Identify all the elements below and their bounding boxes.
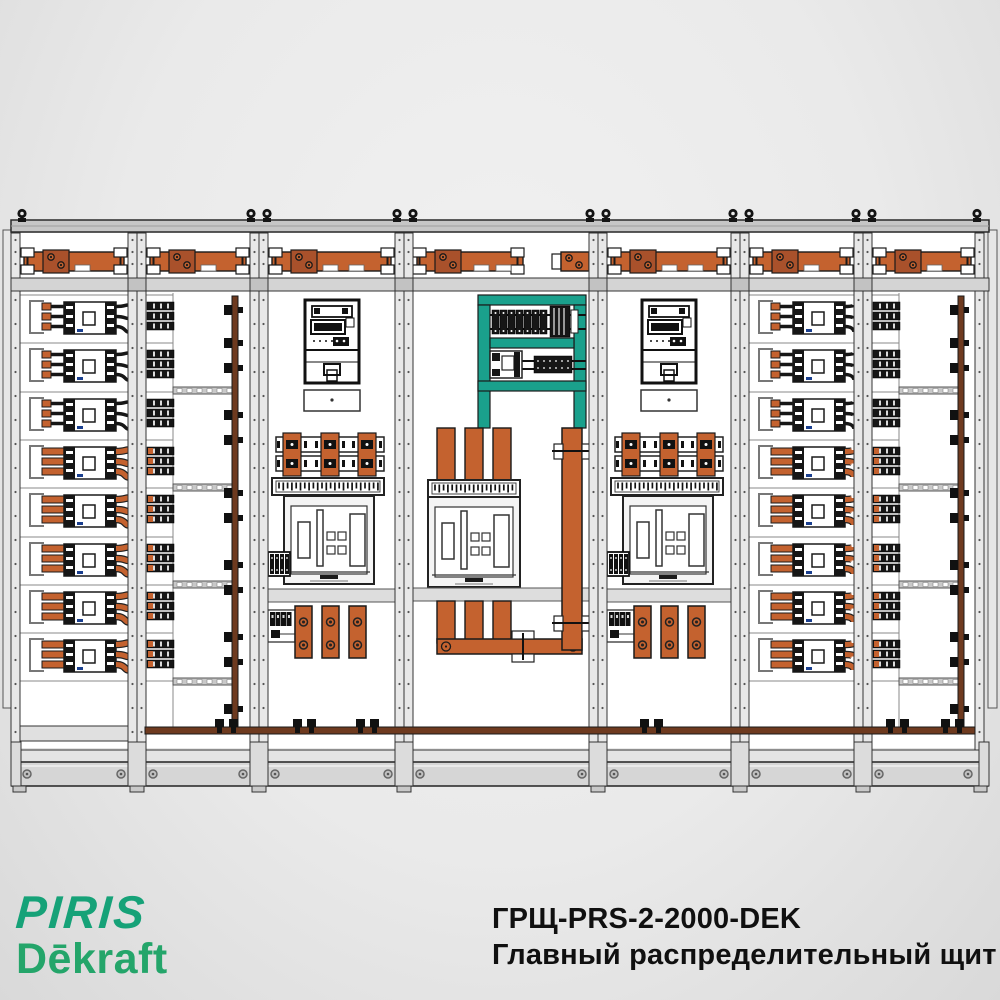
section-7-modular-distribution [863, 233, 984, 750]
mccb-row [30, 446, 128, 479]
lifting-eye-icon [868, 210, 876, 222]
mccb-row [759, 591, 854, 624]
din-breaker-group [607, 552, 629, 576]
mccb-row [759, 494, 854, 527]
din-device [268, 610, 295, 642]
modular-breaker-stack [873, 350, 900, 378]
mccb-row [30, 494, 128, 527]
lifting-eye-icon [602, 210, 610, 222]
product-description: Главный распределительный щит [492, 937, 997, 973]
busbar-compartment [608, 248, 730, 274]
lifting-eye-icon [852, 210, 860, 222]
lifting-eye-icon [409, 210, 417, 222]
section-3-metering-incomer-acb [259, 233, 404, 750]
acb-breaker [428, 497, 520, 587]
modular-breaker-stack [873, 640, 900, 668]
lifting-eye-icon [745, 210, 753, 222]
modular-breaker-stack [873, 544, 900, 572]
lifting-eye-icon [263, 210, 271, 222]
modular-breaker-stack [873, 302, 900, 330]
din-breaker-group [268, 552, 290, 576]
lifting-eye-icon [247, 210, 255, 222]
product-caption: ГРЩ-PRS-2-2000-DEK Главный распределител… [492, 901, 997, 973]
mccb-row [30, 639, 128, 672]
mccb-row [759, 446, 854, 479]
fuse-switch-cluster [615, 433, 723, 476]
side-panel-right [988, 230, 997, 708]
mccb-row [759, 543, 854, 576]
plinth-base [11, 742, 989, 792]
busbar-compartment [750, 248, 853, 274]
mccb-row [30, 349, 128, 382]
modular-breaker-stack [147, 302, 174, 330]
section-5-metering-incomer-acb [598, 233, 740, 750]
energy-meter [642, 300, 696, 383]
product-page: PIRIS Dēkraft ГРЩ-PRS-2-2000-DEK Главный… [0, 0, 1000, 1000]
mccb-row [30, 591, 128, 624]
modular-breaker-stack [147, 447, 174, 475]
modular-breaker-stack [873, 495, 900, 523]
busbar-compartment [21, 248, 127, 274]
acb-breaker [284, 496, 374, 584]
modular-breaker-stack [147, 640, 174, 668]
fuse-switch-cluster [276, 433, 384, 476]
modular-breaker-stack [147, 592, 174, 620]
modular-breaker-stack [147, 544, 174, 572]
mccb-row [759, 349, 854, 382]
energy-meter [305, 300, 359, 383]
brand-logo-dekraft: Dēkraft [16, 938, 168, 981]
busbar-compartment [404, 233, 598, 278]
section-2-modular-distribution [137, 233, 259, 750]
section-6-outgoing-mccb-feeders [740, 233, 863, 750]
lifting-eye-icon [973, 210, 981, 222]
top-rail [11, 220, 989, 232]
busbar-compartment [873, 248, 974, 274]
mccb-row [30, 398, 128, 431]
modular-breaker-stack [147, 495, 174, 523]
busbar-compartment [269, 248, 394, 274]
modular-breaker-stack [147, 350, 174, 378]
product-model: ГРЩ-PRS-2-2000-DEK [492, 901, 997, 937]
switchboard-front-view-drawing [0, 0, 1000, 1000]
section-1-outgoing-mccb-feeders [11, 233, 137, 750]
mccb-row [759, 301, 854, 334]
modular-breaker-stack [873, 399, 900, 427]
modular-breaker-stack [873, 447, 900, 475]
mccb-row [759, 398, 854, 431]
brand-logo: PIRIS Dēkraft [16, 889, 168, 981]
lifting-eye-icon [18, 210, 26, 222]
horizontal-divider [11, 278, 989, 291]
acb-breaker [623, 496, 713, 584]
lifting-eye-icon [586, 210, 594, 222]
brand-logo-piris: PIRIS [14, 889, 169, 935]
busbar-compartment [147, 248, 249, 274]
mccb-row [759, 639, 854, 672]
din-device [607, 610, 634, 642]
lifting-eye-icon [393, 210, 401, 222]
mccb-row [30, 301, 128, 334]
modular-breaker-stack [147, 399, 174, 427]
switchboard-lineup [3, 210, 997, 792]
section-4-bus-coupler-acb [404, 233, 598, 750]
mccb-row [30, 543, 128, 576]
modular-breaker-stack [873, 592, 900, 620]
din-rail-devices-upper [490, 306, 586, 337]
lifting-eye-icon [729, 210, 737, 222]
